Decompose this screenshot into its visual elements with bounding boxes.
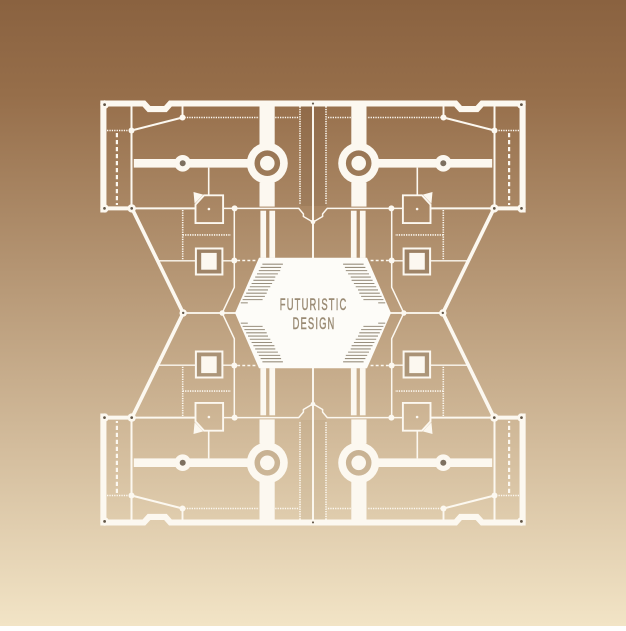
svg-text:FUTURISTIC: FUTURISTIC: [280, 295, 348, 313]
svg-text:DESIGN: DESIGN: [293, 314, 336, 332]
